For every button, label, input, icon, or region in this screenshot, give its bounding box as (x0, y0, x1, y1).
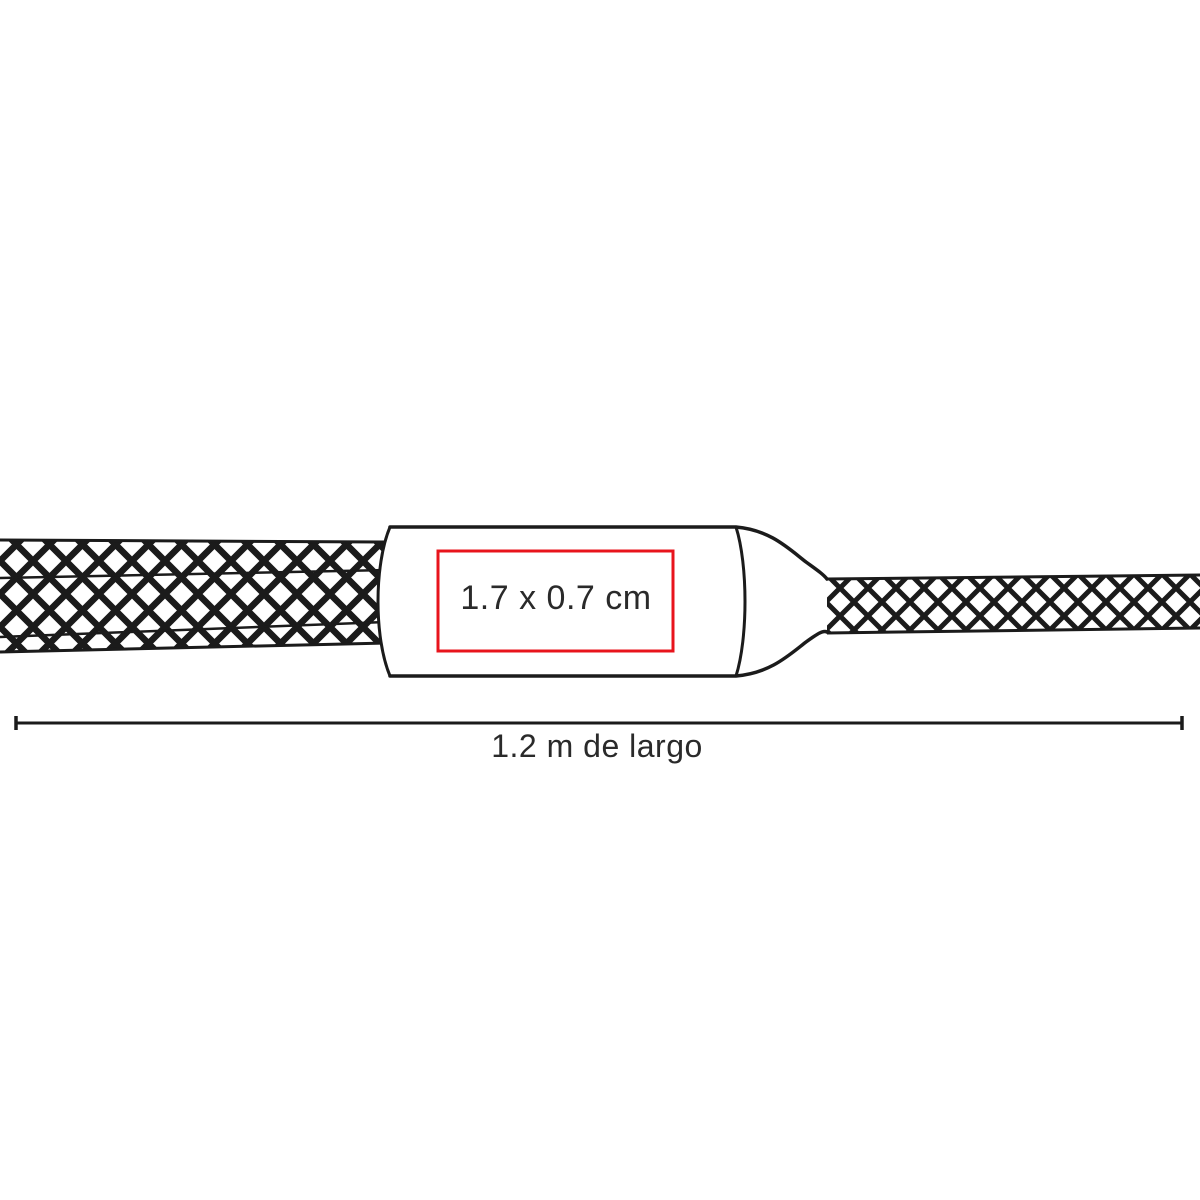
right-braided-cable (827, 575, 1200, 633)
print-area-size-label: 1.7 x 0.7 cm (460, 579, 651, 617)
length-dimension-label: 1.2 m de largo (491, 728, 703, 764)
right-braid-texture (827, 575, 1200, 633)
left-cable-top-edge (0, 540, 386, 542)
left-braided-cable (0, 540, 386, 652)
product-print-area-diagram: 1.7 x 0.7 cm 1.2 m de largo (0, 0, 1200, 1200)
diagram-canvas: 1.7 x 0.7 cm 1.2 m de largo (0, 0, 1200, 1200)
length-dimension: 1.2 m de largo (16, 716, 1182, 764)
